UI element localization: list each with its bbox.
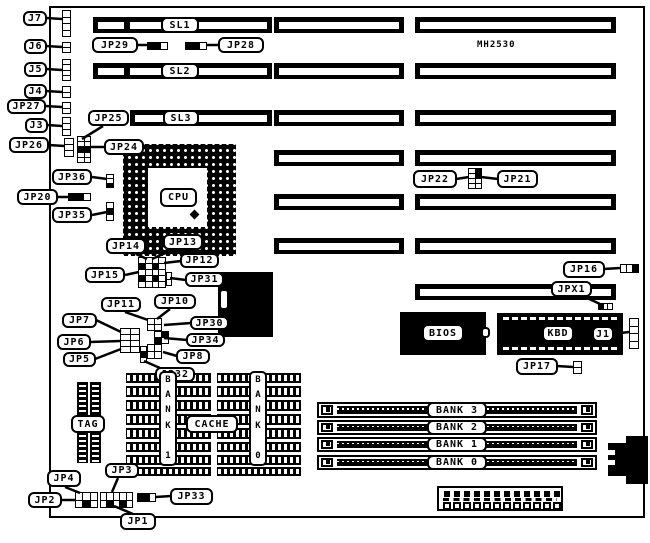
jp17-jumper <box>573 361 582 374</box>
slot-bar-inner <box>279 155 399 162</box>
callout-bank3: BANK 3 <box>427 402 487 418</box>
pin <box>63 18 70 24</box>
slot-bar-r1-2 <box>274 17 404 33</box>
slot-bar-r2-3 <box>415 63 616 79</box>
jp35-jumper <box>106 202 114 221</box>
slot-bar-r3-1 <box>130 110 272 126</box>
pin <box>121 347 130 352</box>
callout-jp5: JP5 <box>63 352 96 367</box>
callout-jp21: JP21 <box>497 170 538 188</box>
pin <box>148 352 154 358</box>
chip-pin-texture <box>127 469 210 474</box>
pin <box>476 174 482 178</box>
pin <box>139 276 145 281</box>
pin <box>101 493 106 500</box>
pin <box>131 341 140 346</box>
pin <box>65 145 73 150</box>
chip-pin-texture <box>218 469 300 474</box>
din-connector-body <box>626 436 648 484</box>
pin <box>630 334 638 341</box>
jp32-jumper <box>140 346 147 363</box>
pin <box>159 282 165 287</box>
pin <box>155 319 161 324</box>
pin <box>65 139 73 144</box>
pin <box>193 43 199 49</box>
pin <box>574 368 581 373</box>
jp28-jumper <box>185 42 207 50</box>
power-cell <box>443 502 451 510</box>
pin <box>78 158 84 162</box>
power-pin <box>494 491 500 497</box>
jp33-jumper <box>137 493 156 502</box>
slot-bar-inner <box>420 199 611 206</box>
vlabel-char: B <box>165 376 170 385</box>
callout-sl2: SL2 <box>161 63 199 79</box>
callout-jp8: JP8 <box>176 349 210 364</box>
vlabel-char <box>255 437 260 446</box>
vlabel-char: 0 <box>255 452 260 461</box>
jp31-ext <box>166 272 172 286</box>
pin <box>63 31 70 37</box>
pin <box>63 130 70 135</box>
chipset-side-component <box>219 289 229 310</box>
pin <box>146 270 152 275</box>
callout-jp4: JP4 <box>47 470 81 487</box>
pin <box>85 142 91 146</box>
slot-bar-inner <box>420 68 611 75</box>
pin <box>159 264 165 269</box>
pin <box>78 142 84 146</box>
callout-bank1: BANK 1 <box>427 437 487 452</box>
pin <box>155 325 161 330</box>
vlabel-cache-bank0: BANK 0 <box>249 371 267 466</box>
pin <box>167 280 171 286</box>
pin <box>78 147 84 151</box>
j4-header <box>62 86 71 98</box>
callout-cache: CACHE <box>186 415 238 433</box>
callout-jp22: JP22 <box>413 170 457 188</box>
power-pin <box>454 491 460 497</box>
power-cell <box>553 502 561 510</box>
pin <box>63 43 70 47</box>
slot-bar-inner <box>279 199 399 206</box>
pin <box>107 501 112 508</box>
callout-jp29: JP29 <box>92 37 138 53</box>
callout-j5: J5 <box>24 62 47 77</box>
vlabel-char <box>165 437 170 446</box>
pin <box>63 11 70 17</box>
power-pin <box>514 491 520 497</box>
power-pin <box>474 491 480 497</box>
callout-jp7: JP7 <box>62 313 97 328</box>
vlabel-char: A <box>255 391 260 400</box>
slot-bar-r2-2 <box>274 63 404 79</box>
slot-bar-inner <box>420 22 611 29</box>
callout-jp28: JP28 <box>218 37 264 53</box>
pin <box>131 347 140 352</box>
pin <box>101 501 106 508</box>
power-cell <box>463 502 471 510</box>
at-power-connector <box>437 486 563 511</box>
pin <box>476 184 482 188</box>
pin <box>63 48 70 52</box>
slot-bar-r5-2 <box>415 194 616 210</box>
cluster-b <box>154 331 169 344</box>
callout-jp20: JP20 <box>17 189 58 205</box>
pin <box>148 319 154 324</box>
power-cell <box>543 502 551 510</box>
callout-jp24: JP24 <box>104 139 144 155</box>
power-cell <box>473 502 481 510</box>
pin <box>63 109 70 114</box>
slot-bar-r1-3 <box>415 17 616 33</box>
vlabel-cache-bank1: BANK 1 <box>159 371 177 466</box>
pin <box>141 352 146 356</box>
pin <box>63 103 70 108</box>
slot-bar-inner <box>279 22 399 29</box>
pin <box>630 342 638 349</box>
power-cell <box>453 502 461 510</box>
callout-jpx1: JPX1 <box>551 281 592 297</box>
vlabel-char: 1 <box>165 452 170 461</box>
pin <box>138 494 143 501</box>
pin <box>85 137 91 141</box>
pin <box>83 493 89 500</box>
chip-pin-dashes <box>503 317 617 320</box>
pin <box>469 184 475 188</box>
pin <box>139 258 145 263</box>
pin <box>91 501 97 508</box>
simm-latch <box>581 423 593 432</box>
pin <box>627 265 632 272</box>
pin <box>608 304 612 309</box>
cache-chip-g1-r7 <box>217 467 301 476</box>
jp567-block <box>120 328 140 353</box>
j6-header <box>62 42 71 53</box>
pin <box>139 270 145 275</box>
pin <box>469 179 475 183</box>
jp26-header <box>64 138 74 157</box>
pin <box>200 43 206 49</box>
pin <box>69 194 75 200</box>
pin <box>155 345 161 351</box>
power-pin <box>504 491 510 497</box>
vlabel-char: K <box>255 422 260 431</box>
callout-j7: J7 <box>23 11 47 26</box>
pin <box>107 209 113 214</box>
callout-jp36: JP36 <box>52 169 92 185</box>
callout-jp34: JP34 <box>186 333 225 347</box>
slot-key-notch <box>124 63 130 79</box>
callout-jp3: JP3 <box>105 463 139 478</box>
jp36-jumper <box>106 174 114 188</box>
callout-jp27: JP27 <box>7 99 46 114</box>
pin <box>76 501 82 508</box>
power-pin <box>534 491 540 497</box>
jp3-block <box>100 492 133 508</box>
jp13-block <box>138 257 166 288</box>
callout-bank2: BANK 2 <box>427 420 487 435</box>
jp16-jumper <box>620 264 639 273</box>
pin <box>63 76 70 80</box>
pin <box>107 493 112 500</box>
din-notch-1 <box>608 458 617 467</box>
callout-jp26: JP26 <box>9 137 49 153</box>
pin <box>85 153 91 157</box>
pin <box>139 264 145 269</box>
slot-bar-r6-1 <box>274 238 404 254</box>
jp22-block <box>468 168 482 189</box>
power-cell <box>483 502 491 510</box>
pin <box>153 264 159 269</box>
slot-bar-inner <box>135 115 267 122</box>
pin <box>150 494 155 501</box>
callout-jp13: JP13 <box>163 234 203 250</box>
pin <box>63 60 70 64</box>
pin <box>63 87 70 92</box>
pin <box>159 270 165 275</box>
pin <box>155 338 161 343</box>
slot-bar-inner <box>279 243 399 250</box>
callout-jp14: JP14 <box>106 238 146 254</box>
pin <box>107 203 113 208</box>
pin <box>131 335 140 340</box>
pin <box>141 347 146 351</box>
pin <box>65 151 73 156</box>
simm-latch <box>321 440 333 449</box>
slot-bar-r3-2 <box>274 110 404 126</box>
pin <box>114 493 119 500</box>
callout-j1: J1 <box>592 326 614 342</box>
simm-latch <box>581 458 593 467</box>
pin <box>63 71 70 75</box>
vlabel-char: A <box>165 391 170 400</box>
power-dash-row <box>443 498 557 501</box>
pin <box>146 282 152 287</box>
pin <box>78 137 84 141</box>
callout-jp16: JP16 <box>563 261 605 278</box>
pin <box>139 282 145 287</box>
pin <box>144 494 149 501</box>
chip-pin-dashes <box>503 347 617 350</box>
callout-j4: J4 <box>24 84 47 99</box>
pin <box>76 194 82 200</box>
pin <box>127 493 132 500</box>
pin <box>476 169 482 173</box>
pin <box>146 258 152 263</box>
power-pin <box>484 491 490 497</box>
callout-cpu: CPU <box>160 188 197 207</box>
pin <box>63 24 70 30</box>
j3-header <box>62 117 71 136</box>
pin <box>159 276 165 281</box>
j1-conn <box>629 318 639 349</box>
jp20-jumper <box>68 193 91 201</box>
slot-bar-r6-2 <box>415 238 616 254</box>
slot-bar-r4-1 <box>274 150 404 166</box>
pin <box>63 118 70 123</box>
callout-sl3: SL3 <box>163 110 199 126</box>
callout-jp31: JP31 <box>185 272 224 287</box>
pin <box>148 43 154 49</box>
callout-jp10: JP10 <box>154 294 196 309</box>
pin <box>574 362 581 367</box>
power-cell <box>533 502 541 510</box>
pin <box>153 276 159 281</box>
motherboard-diagram: MH2530 J7J6J5J4JP27J3JP26JP25JP24JP29JP2… <box>0 0 650 543</box>
slot-bar-r4-2 <box>415 150 616 166</box>
power-pin <box>544 491 550 497</box>
callout-sl1: SL1 <box>161 17 199 33</box>
pin <box>107 179 113 182</box>
power-pin <box>524 491 530 497</box>
power-pin <box>554 491 560 497</box>
pin <box>630 327 638 334</box>
pin <box>604 304 608 309</box>
pin <box>85 158 91 162</box>
jp2-block <box>75 492 98 508</box>
simm-latch <box>581 405 593 415</box>
pin <box>148 325 154 330</box>
jp27-header <box>62 102 71 114</box>
pin <box>155 43 161 49</box>
callout-jp33: JP33 <box>170 488 213 505</box>
callout-j3: J3 <box>25 118 48 133</box>
callout-kbd: KBD <box>542 325 574 342</box>
pin <box>153 270 159 275</box>
din-notch-0 <box>608 448 617 457</box>
power-pin <box>464 491 470 497</box>
jp29-jumper <box>147 42 168 50</box>
pin <box>161 43 167 49</box>
pin <box>84 194 90 200</box>
cluster-c <box>147 344 162 359</box>
power-cell <box>503 502 511 510</box>
pin <box>186 43 192 49</box>
pin <box>131 329 140 334</box>
pin <box>63 93 70 98</box>
pin <box>469 174 475 178</box>
power-cell <box>513 502 521 510</box>
jp24-block <box>77 136 91 163</box>
pin <box>121 335 130 340</box>
pin <box>162 338 168 343</box>
pin <box>85 147 91 151</box>
callout-jp35: JP35 <box>52 207 92 223</box>
pin <box>633 265 638 272</box>
callout-jp6: JP6 <box>57 334 91 350</box>
callout-bios: BIOS <box>422 324 464 342</box>
callout-jp17: JP17 <box>516 358 558 375</box>
pin <box>630 319 638 326</box>
j7-header <box>62 10 71 37</box>
pin <box>120 501 125 508</box>
callout-jp30: JP30 <box>190 316 229 330</box>
callout-jp11: JP11 <box>101 297 141 312</box>
simm-latch <box>321 458 333 467</box>
slot-bar-r5-1 <box>274 194 404 210</box>
callout-jp12: JP12 <box>180 253 219 268</box>
pin <box>91 493 97 500</box>
pin <box>107 215 113 220</box>
slot-bar-inner <box>420 115 611 122</box>
pin <box>167 273 171 279</box>
pin <box>127 501 132 508</box>
power-pin <box>444 491 450 497</box>
pin <box>153 282 159 287</box>
pin <box>121 329 130 334</box>
slot-bar-r3-3 <box>415 110 616 126</box>
slot-bar-inner <box>420 155 611 162</box>
power-cell <box>493 502 501 510</box>
callout-bank0: BANK 0 <box>427 455 487 470</box>
callout-tag: TAG <box>71 415 105 433</box>
pin <box>162 332 168 337</box>
pin <box>621 265 626 272</box>
bios-chip-notch <box>481 327 490 338</box>
slot-bar-inner <box>279 68 399 75</box>
slot-key-notch <box>124 17 130 33</box>
pin <box>476 179 482 183</box>
pin <box>114 501 119 508</box>
chip-marking-text: MH2530 <box>477 39 537 51</box>
callout-jp15: JP15 <box>85 267 125 283</box>
pin <box>148 345 154 351</box>
vlabel-char: N <box>165 406 170 415</box>
callout-j6: J6 <box>24 39 47 54</box>
pin <box>155 352 161 358</box>
pin <box>469 169 475 173</box>
pin <box>83 501 89 508</box>
pin <box>63 65 70 69</box>
pin <box>146 264 152 269</box>
pin <box>121 341 130 346</box>
pin <box>153 258 159 263</box>
vlabel-char: N <box>255 406 260 415</box>
callout-jp25: JP25 <box>88 110 129 126</box>
pin <box>63 124 70 129</box>
simm-latch <box>581 440 593 449</box>
callout-jp1: JP1 <box>120 513 156 530</box>
pin <box>599 304 603 309</box>
cluster-a <box>147 318 162 331</box>
jpx1-jumper <box>598 303 613 310</box>
vlabel-char: K <box>165 422 170 431</box>
pin <box>107 175 113 178</box>
vlabel-char: B <box>255 376 260 385</box>
pin <box>107 184 113 187</box>
j5-header <box>62 59 71 81</box>
slot-bar-inner <box>279 115 399 122</box>
pin <box>76 493 82 500</box>
callout-jp2: JP2 <box>28 492 62 508</box>
power-cell <box>523 502 531 510</box>
pin <box>155 332 161 337</box>
simm-latch <box>321 423 333 432</box>
pin <box>141 358 146 362</box>
pin <box>146 276 152 281</box>
simm-latch <box>321 405 333 415</box>
pin <box>120 493 125 500</box>
slot-bar-inner <box>420 243 611 250</box>
pin <box>78 153 84 157</box>
pin <box>159 258 165 263</box>
